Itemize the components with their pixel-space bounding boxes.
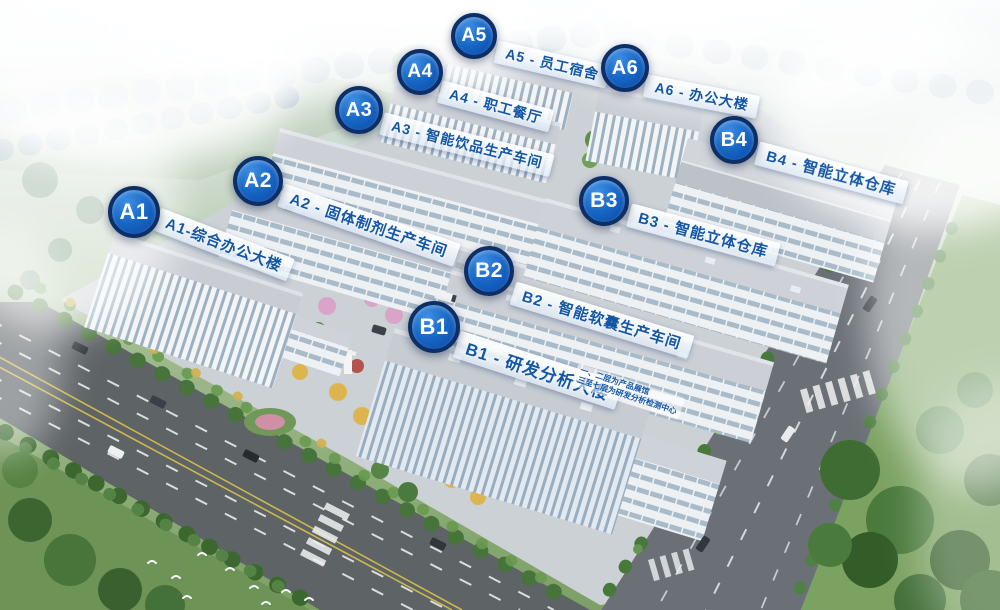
badge-b1: B1 [408, 301, 460, 353]
badge-a6: A6 [601, 44, 649, 92]
badge-a1: A1 [108, 186, 160, 238]
badge-b3: B3 [579, 176, 629, 226]
badge-a2: A2 [233, 156, 283, 206]
badge-a3: A3 [335, 86, 383, 134]
badge-b4: B4 [710, 116, 758, 164]
badge-b2: B2 [464, 246, 514, 296]
badge-a5: A5 [451, 13, 497, 59]
badge-a4: A4 [397, 49, 443, 95]
scene-illustration [0, 0, 1000, 610]
campus-aerial-rendering: A1 A2 A3 A4 A5 A6 B1 B2 B3 B4 A1-综合办公大楼 … [0, 0, 1000, 610]
